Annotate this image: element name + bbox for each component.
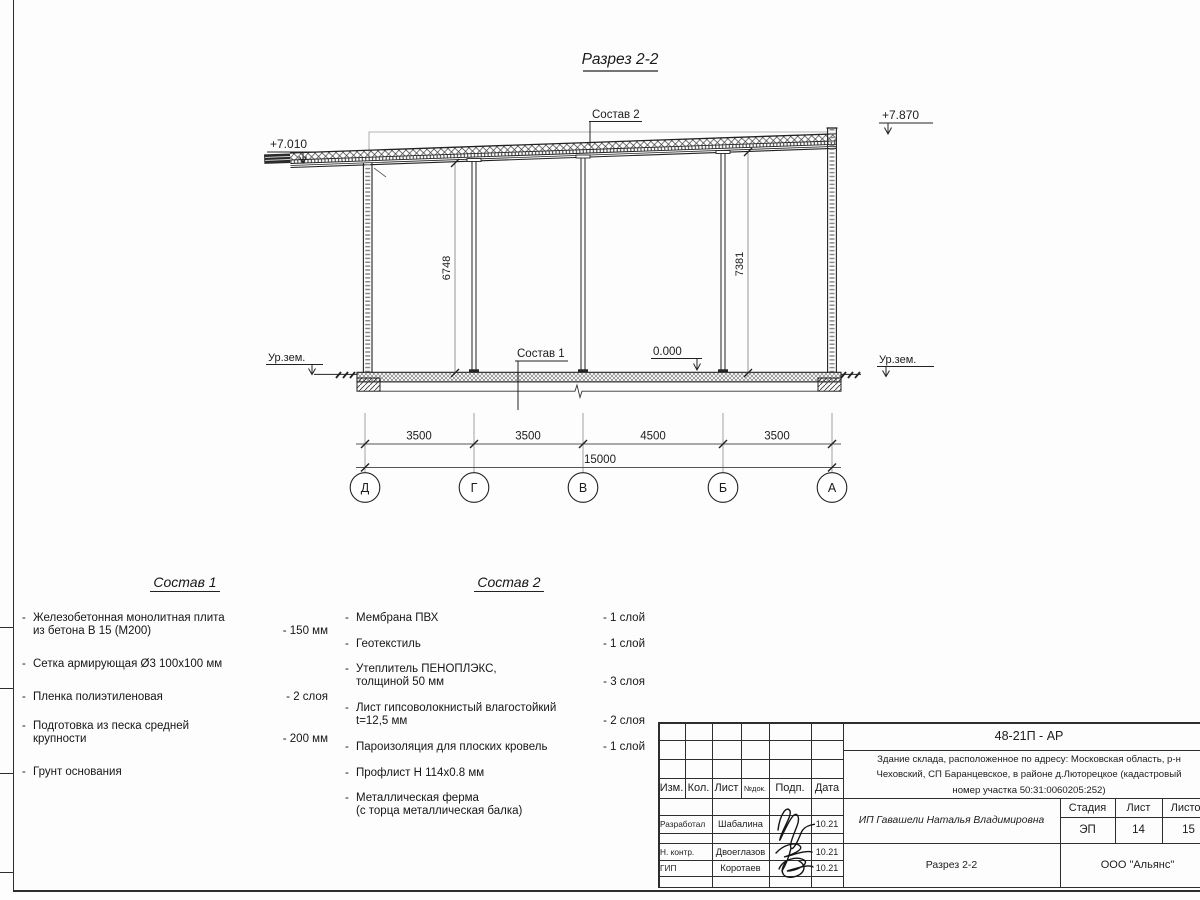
svg-text:0.000: 0.000 [653, 346, 682, 358]
svg-text:Ур.зем.: Ур.зем. [268, 352, 305, 364]
stamp-date: 10.21 [811, 860, 843, 876]
dimension-chain: 3500 3500 4500 3500 15000 [356, 413, 841, 473]
axis-label: Б [719, 481, 727, 495]
frame-fold-tick [0, 872, 13, 873]
list-item: - Утеплитель ПЕНОПЛЭКС, толщиной 50 мм -… [345, 663, 645, 689]
section-title: Разрез 2-2 [582, 51, 659, 68]
zero-level-label: 0.000 [651, 346, 702, 370]
client-name: ИП Гавашели Наталья Владимировна [843, 798, 1060, 843]
sheet-label: Лист [1115, 798, 1162, 817]
span-dim: 4500 [640, 431, 666, 443]
height-dimension-left: 6748 [441, 159, 459, 377]
stamp-role: ГИП [660, 860, 712, 876]
project-description: Здание склада, расположенное по адресу: … [845, 752, 1200, 798]
svg-text:7381: 7381 [734, 252, 746, 276]
section-drawing: Разрез 2-2 [0, 0, 1200, 560]
list-item: - Подготовка из песка средней крупности … [22, 720, 328, 746]
floor-slab [357, 372, 841, 397]
stamp-header-kol: Кол. [685, 778, 712, 798]
foundation-left [357, 378, 380, 391]
column [467, 159, 481, 373]
span-dim: 3500 [406, 431, 432, 443]
roof-eave-block [264, 153, 290, 163]
stamp-date: 10.21 [811, 843, 843, 860]
stage-value: ЭП [1060, 817, 1115, 843]
list-item: - Мембрана ПВХ - 1 слой [345, 612, 645, 625]
list-item: - Железобетонная монолитная плита из бет… [22, 612, 328, 638]
axis-label: А [828, 481, 837, 495]
roof-truss-band [264, 134, 836, 169]
column [716, 151, 730, 373]
axis-label: Д [361, 481, 370, 495]
list-item: - Грунт основания [22, 766, 328, 779]
stamp-header-data: Дата [811, 778, 843, 798]
stamp-header-list: Лист [712, 778, 741, 798]
axis-label: В [579, 481, 587, 495]
sostav2-title: Состав 2 [474, 576, 543, 592]
sostav2-list: Состав 2 - Мембрана ПВХ - 1 слой - Геоте… [345, 576, 645, 835]
stamp-name: Шабалина [712, 815, 769, 833]
ground-level-right: Ур.зем. [877, 354, 934, 377]
sheets-label: Листов [1162, 798, 1200, 817]
description-line: номер участка 50:31:0060205:252) [845, 783, 1200, 798]
sostav1-list: Состав 1 - Железобетонная монолитная пли… [22, 576, 328, 796]
frame-fold-tick [0, 773, 13, 774]
description-line: Чеховский, СП Баранцевское, в районе д.Л… [845, 767, 1200, 782]
svg-text:Состав 2: Состав 2 [592, 109, 640, 121]
list-item: - Лист гипсоволокнистый влагостойкий t=1… [345, 702, 645, 728]
stamp-role: Разработал [660, 815, 712, 833]
foundation-right [818, 378, 841, 391]
drawing-sheet: { "title": "Разрез 2-2", "section": { "e… [0, 0, 1200, 900]
list-item: - Профлист Н 114х0.8 мм [345, 767, 645, 780]
list-item: - Сетка армирующая Ø3 100х100 мм [22, 658, 328, 671]
column [576, 155, 590, 373]
left-wall [363, 163, 386, 373]
span-dim: 3500 [764, 431, 790, 443]
sheets-value: 15 [1162, 817, 1200, 843]
stamp-name: Двоеглазов [712, 843, 769, 860]
doc-number: 48-21П - АР [843, 722, 1200, 750]
drawing-name: Разрез 2-2 [843, 843, 1060, 887]
list-item: - Геотекстиль - 1 слой [345, 638, 645, 651]
frame-fold-tick [0, 627, 13, 628]
signatures [769, 800, 815, 888]
span-dim: 3500 [515, 431, 541, 443]
sheet-value: 14 [1115, 817, 1162, 843]
svg-text:+7.870: +7.870 [882, 108, 919, 122]
svg-text:+7.010: +7.010 [270, 137, 307, 151]
stamp-header-podp: Подп. [769, 778, 811, 798]
ground-level-left: Ур.зем. [266, 352, 323, 375]
height-dimension-right: 7381 [734, 148, 752, 377]
title-block: Изм. Кол. Лист №док. Подп. Дата Разработ… [658, 722, 1200, 888]
stamp-name: Коротаев [712, 860, 769, 876]
stamp-header-izm: Изм. [658, 778, 685, 798]
axis-label: Г [471, 481, 478, 495]
svg-text:Ур.зем.: Ур.зем. [879, 354, 916, 366]
elevation-right: +7.870 [879, 108, 933, 134]
interior-columns [467, 151, 730, 373]
description-line: Здание склада, расположенное по адресу: … [845, 752, 1200, 767]
list-item: - Металлическая ферма (с торца металличе… [345, 792, 645, 818]
frame-bottom-border [13, 890, 1200, 892]
svg-text:Состав 1: Состав 1 [517, 348, 565, 360]
list-item: - Пленка полиэтиленовая - 2 слоя [22, 691, 328, 704]
stamp-header-ndok: №док. [741, 778, 769, 798]
company-name: ООО "Альянс" [1060, 843, 1200, 887]
list-item: - Пароизоляция для плоских кровель - 1 с… [345, 741, 645, 754]
stamp-date: 10.21 [811, 815, 843, 833]
sostav1-title: Состав 1 [150, 576, 219, 592]
stage-label: Стадия [1060, 798, 1115, 817]
break-symbol [571, 385, 583, 398]
signature-scribble [778, 809, 815, 871]
svg-text:6748: 6748 [441, 256, 453, 280]
total-dim: 15000 [584, 454, 616, 466]
frame-fold-tick [0, 688, 13, 689]
stamp-role: Н. контр. [660, 843, 712, 860]
right-wall [827, 128, 838, 373]
axis-bubbles: Д Г В Б А [350, 473, 847, 503]
